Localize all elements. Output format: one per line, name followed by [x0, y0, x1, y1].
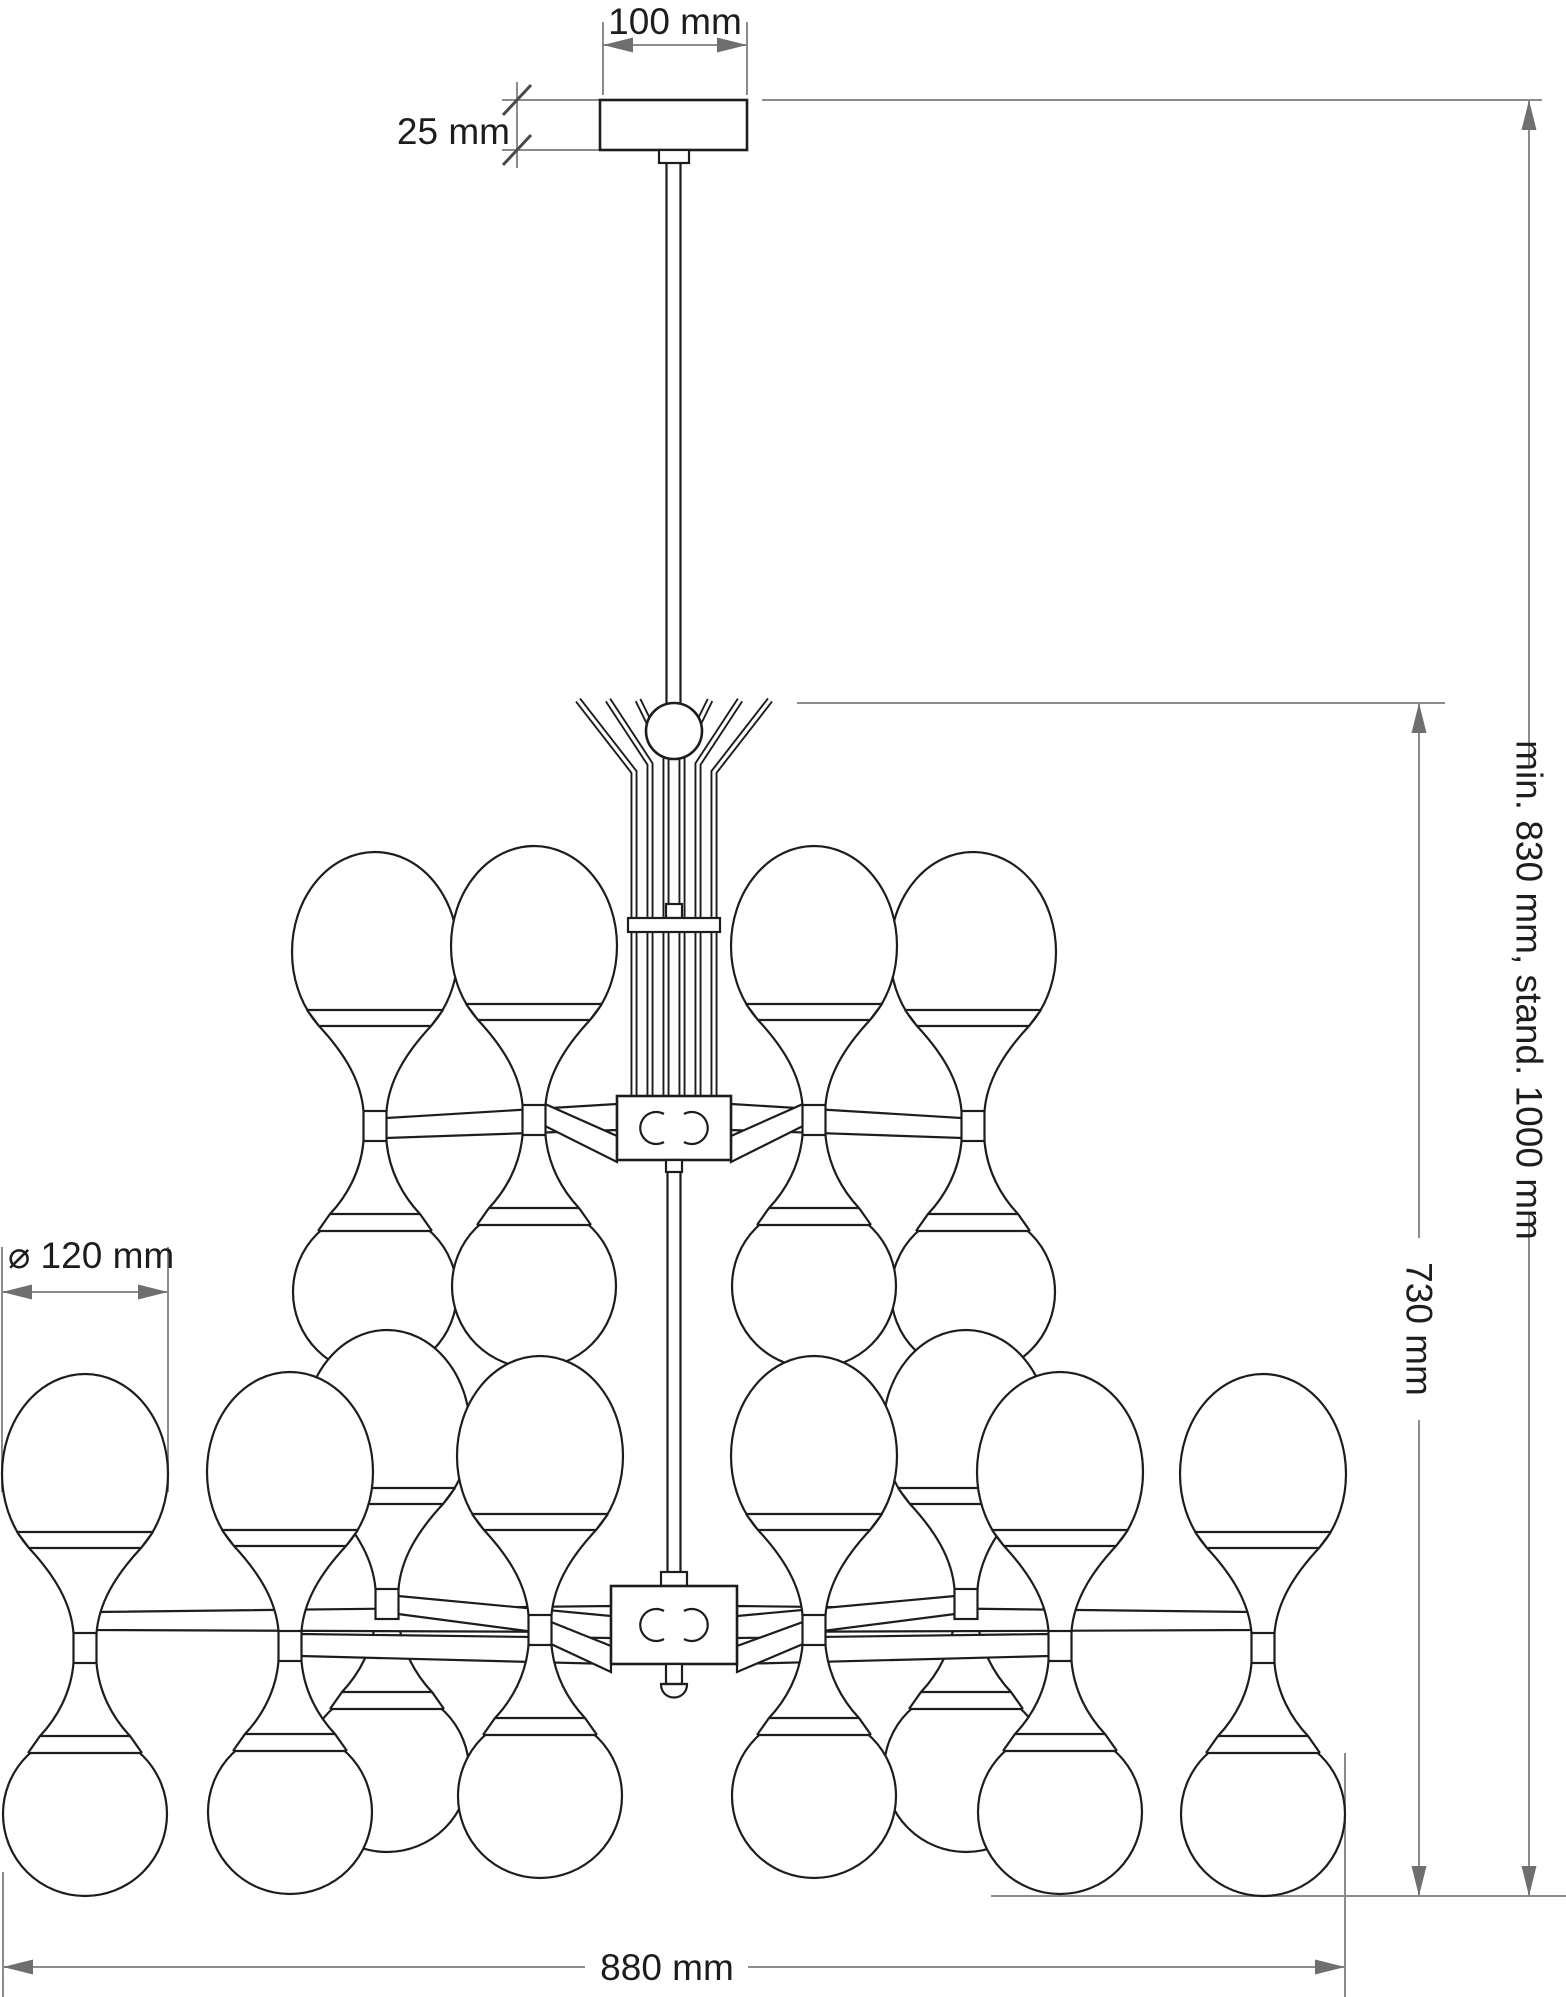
upper-hub: [617, 1096, 731, 1172]
dimension-drawing-page: 100 mm 25 mm ⌀ 120 mm min. 830 mm, stand…: [0, 0, 1566, 1997]
chandelier-drawing: 100 mm 25 mm ⌀ 120 mm min. 830 mm, stand…: [0, 0, 1566, 1997]
dim-label-fixture-height: 730 mm: [1399, 1262, 1440, 1396]
crown-finial-ball: [646, 703, 702, 759]
dim-label-suspension-length: min. 830 mm, stand. 1000 mm: [1509, 740, 1550, 1240]
crown-collar: [628, 918, 720, 932]
center-rod-lower: [661, 1172, 687, 1590]
dim-label-canopy-height: 25 mm: [397, 111, 510, 152]
dim-label-shade-diameter: ⌀ 120 mm: [8, 1235, 174, 1276]
dim-label-canopy-width: 100 mm: [608, 1, 742, 42]
canopy: [600, 100, 747, 163]
lower-hub: [611, 1586, 737, 1698]
hub-finial-knob: [661, 1684, 687, 1698]
lower-tier: [2, 1330, 1346, 1896]
dim-label-fixture-width: 880 mm: [600, 1947, 734, 1988]
